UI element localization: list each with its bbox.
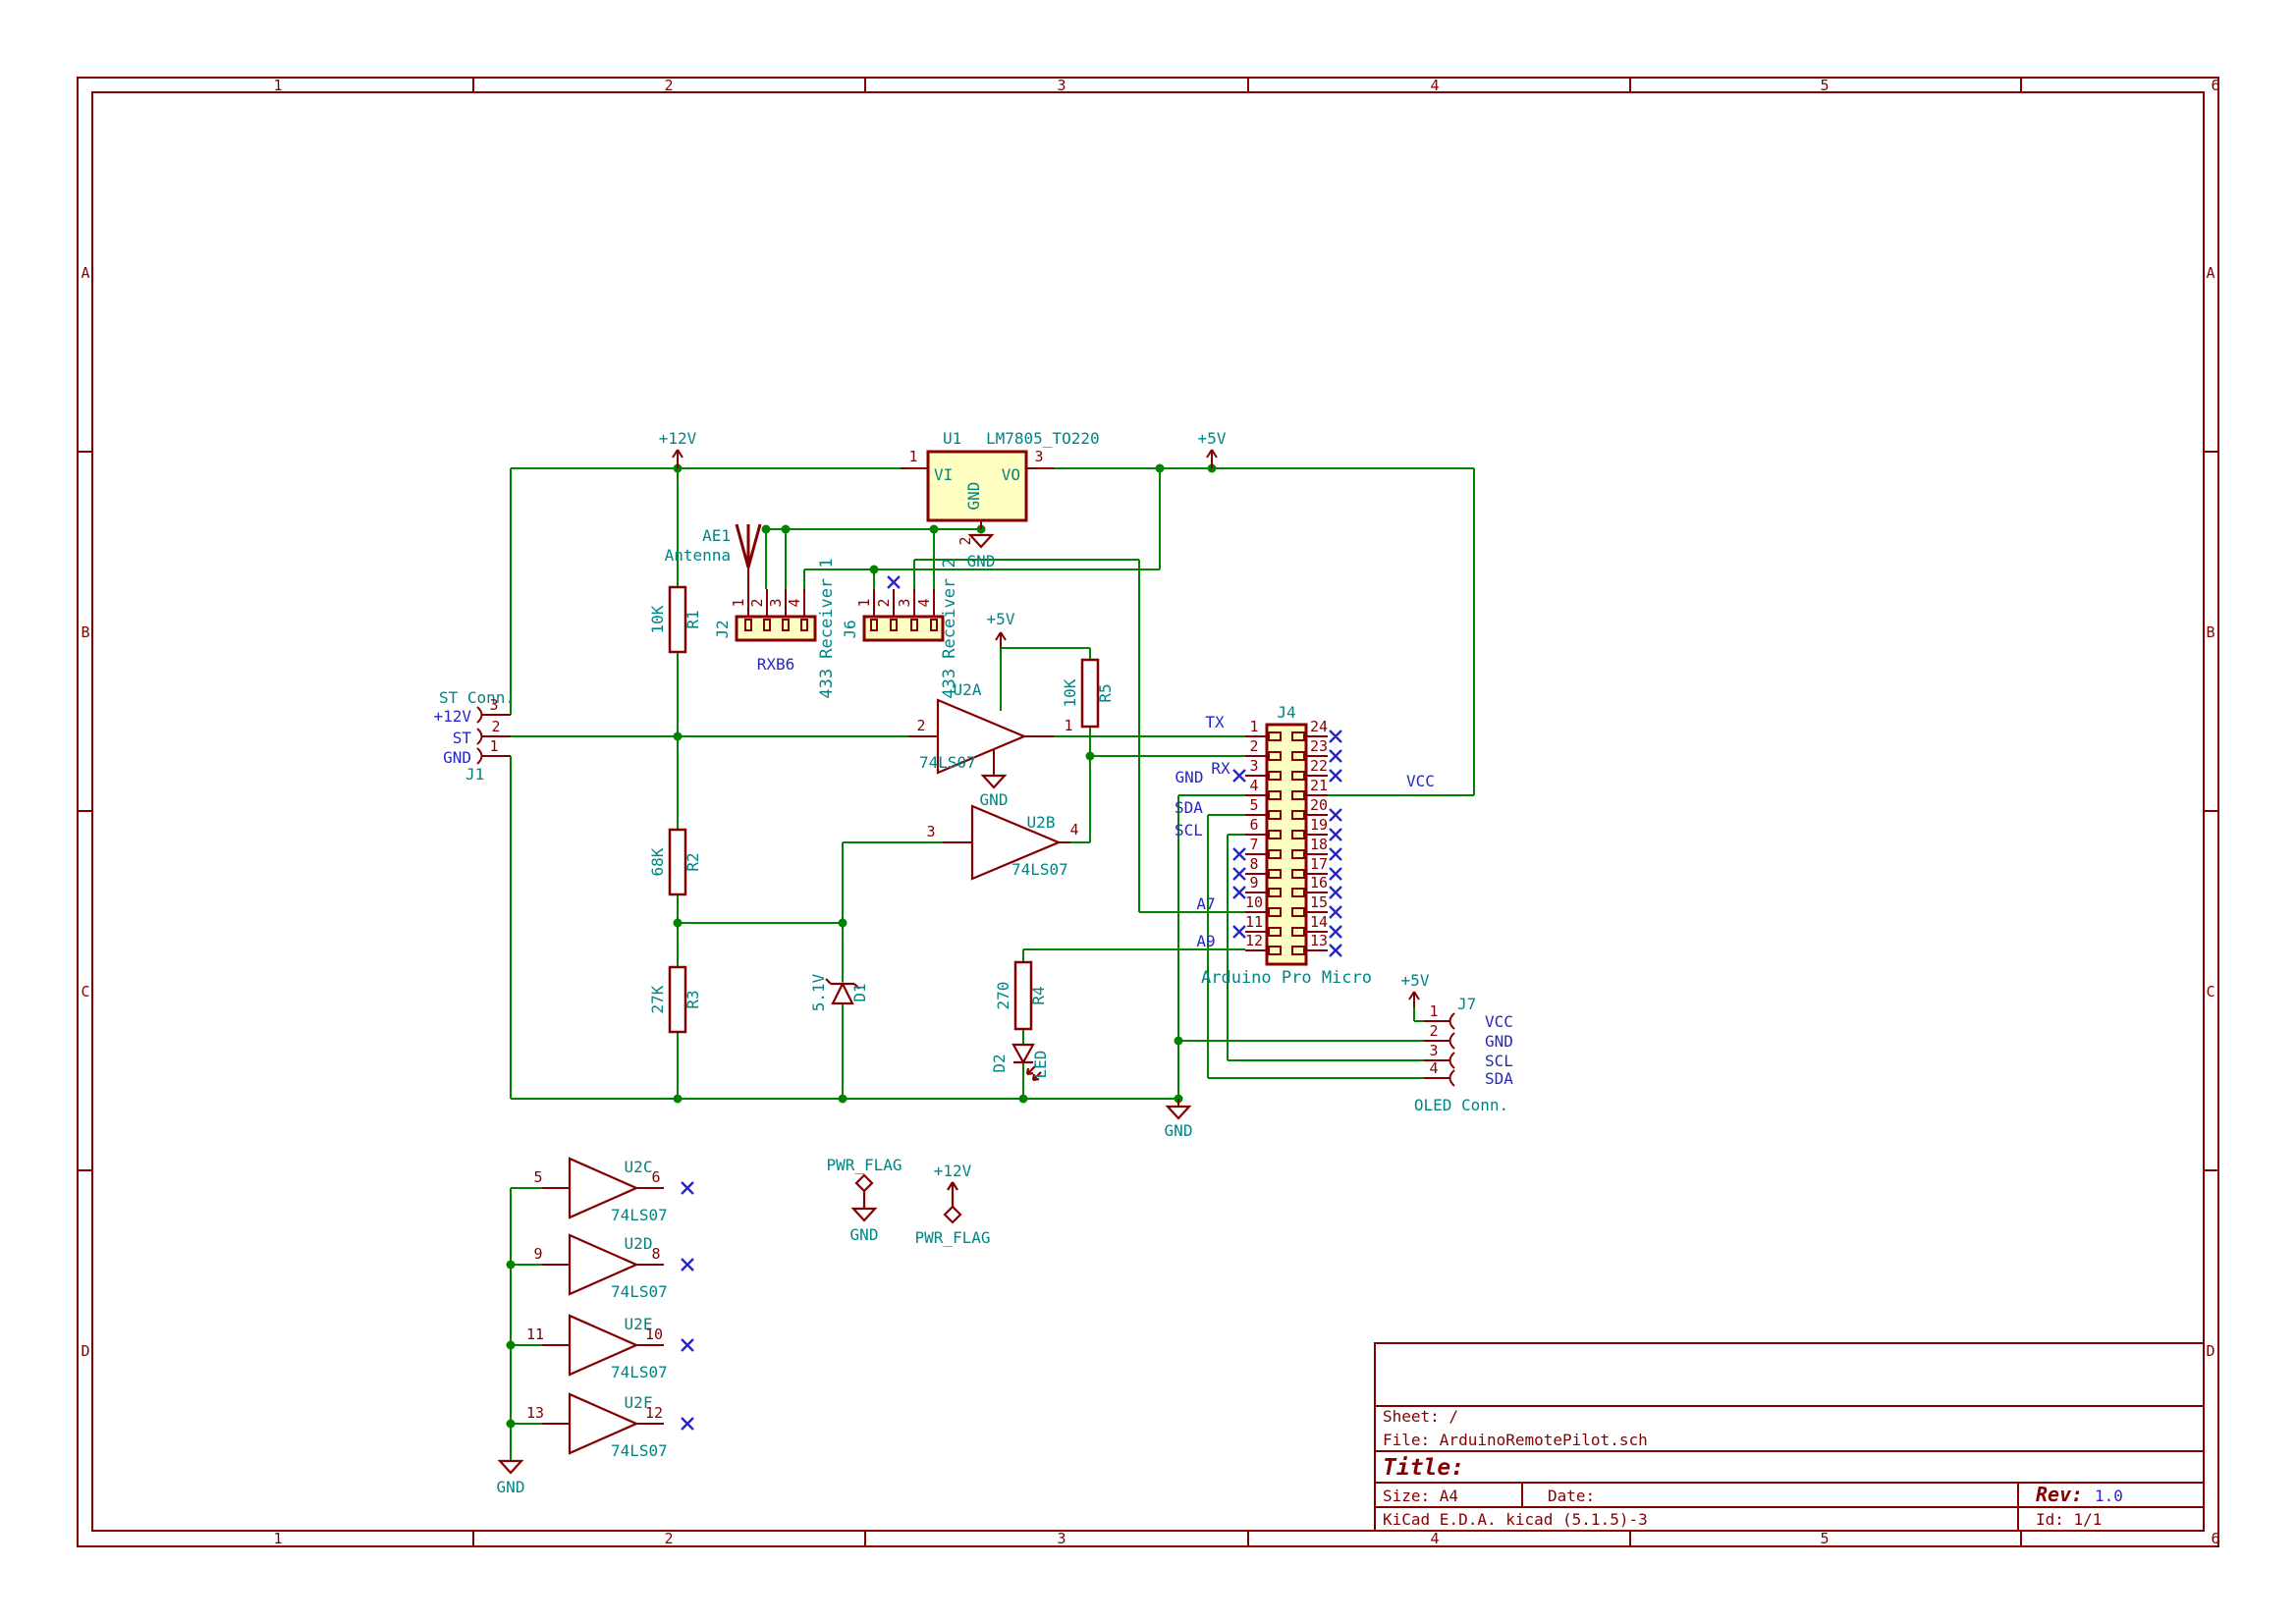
j4-value[interactable]: Arduino Pro Micro	[1201, 968, 1372, 988]
wire-5v-rail-vcc[interactable]	[1054, 468, 1474, 795]
frame-row-label: B	[81, 623, 89, 641]
junction-dot	[839, 1095, 847, 1104]
u2f-value[interactable]: 74LS07	[611, 1441, 668, 1460]
net-label-a7[interactable]: A7	[1196, 894, 1215, 913]
net-label-scl[interactable]: SCL	[1175, 821, 1203, 839]
j7-pin-label[interactable]: GND	[1485, 1032, 1513, 1051]
j4-pin-number: 10	[1245, 893, 1263, 911]
junction-dot	[674, 732, 683, 741]
component-r3[interactable]: 27K R3	[648, 967, 702, 1032]
title-block-file[interactable]: File: ArduinoRemotePilot.sch	[1383, 1431, 1648, 1449]
j1-ref[interactable]: J1	[465, 765, 484, 784]
net-label-tx[interactable]: TX	[1205, 713, 1225, 731]
component-j6-receiver2[interactable]: 1 2 3 4 J6 433 Receiver 2	[841, 558, 959, 698]
j4-pin-number: 14	[1310, 913, 1328, 931]
j4-pin-number: 2	[1249, 737, 1258, 755]
j7-value[interactable]: OLED Conn.	[1414, 1096, 1508, 1114]
frame-row-label: A	[2206, 264, 2214, 282]
j4-pin-number: 18	[1310, 836, 1328, 853]
frame-row-label: C	[2206, 983, 2214, 1001]
gnd-symbol-icon[interactable]	[983, 776, 1005, 787]
junction-dot	[1019, 1095, 1028, 1104]
power-arrow-icon[interactable]	[996, 632, 1006, 648]
r1-value[interactable]: 10K	[648, 605, 667, 633]
gnd-symbol-label[interactable]: GND	[967, 552, 996, 570]
wire-r5-pullup[interactable]	[1070, 727, 1245, 842]
j1-pin-label[interactable]: ST	[453, 729, 472, 747]
component-j7-oled-conn[interactable]: J7 1 2 3 4 VCC GND SCL SDA OLED Conn.	[1414, 995, 1513, 1114]
d2-ref[interactable]: D2	[990, 1054, 1009, 1072]
j7-pin-brackets	[1450, 1013, 1455, 1086]
power-label[interactable]: +5V	[1401, 971, 1430, 990]
pwr-flag-icon[interactable]	[945, 1182, 960, 1222]
j1-value[interactable]: ST Conn.	[439, 688, 515, 707]
frame-outer-border	[78, 78, 2218, 1546]
r2-value[interactable]: 68K	[648, 847, 667, 876]
pwr-flag-label[interactable]: PWR_FLAG	[826, 1156, 902, 1174]
j1-pin-number: 2	[491, 718, 500, 735]
wire-5v-oled[interactable]	[1414, 1007, 1424, 1021]
j7-pin-number: 3	[1429, 1042, 1438, 1059]
u2c-value[interactable]: 74LS07	[611, 1206, 668, 1224]
u2b-ref[interactable]: U2B	[1027, 813, 1056, 832]
junction-dot	[674, 919, 683, 928]
title-block-title-label[interactable]: Title:	[1383, 1455, 1464, 1481]
junction-dot	[507, 1341, 516, 1350]
j4-pin-number: 20	[1310, 796, 1328, 814]
component-j1-st-conn[interactable]: ST Conn. J1 3 2 1 +12V ST GND	[433, 688, 515, 784]
power-symbol-5v-u2a[interactable]: +5V	[987, 610, 1015, 648]
component-u2d-buffer[interactable]: U2D 74LS07 9 8	[533, 1234, 693, 1301]
j6-pin-number: 1	[855, 598, 873, 607]
power-arrow-icon[interactable]	[673, 450, 683, 468]
title-block-generator: KiCad E.D.A. kicad (5.1.5)-3	[1383, 1510, 1648, 1529]
j1-pin-label[interactable]: GND	[443, 748, 471, 767]
j4-pin-number: 15	[1310, 893, 1328, 911]
gnd-symbol-buffers[interactable]: GND	[497, 1461, 525, 1496]
j1-pin-number: 3	[489, 696, 498, 714]
u2d-pin-number: 8	[651, 1245, 660, 1263]
wire-zener-node[interactable]	[678, 842, 943, 1099]
frame-col-label: 1	[273, 1530, 282, 1547]
r4-ref[interactable]: R4	[1029, 986, 1048, 1004]
u1-ref[interactable]: U1	[943, 429, 961, 448]
j2-pin-number: 2	[748, 598, 766, 607]
j4-pin-number: 1	[1249, 718, 1258, 735]
junction-dot	[1086, 752, 1095, 761]
frame-col-label: 4	[1430, 1530, 1439, 1547]
u1-pin-number: 3	[1034, 448, 1043, 465]
junction-dot	[782, 525, 791, 534]
u2a-pin-number: 2	[916, 717, 925, 734]
u1-pin-number: 2	[957, 536, 974, 545]
component-r4[interactable]: 270 R4	[994, 962, 1048, 1029]
junction-dot	[930, 525, 939, 534]
pwr-flag-label[interactable]: PWR_FLAG	[914, 1228, 990, 1247]
j1-pin-label[interactable]: +12V	[433, 707, 471, 726]
u2b-pin-number: 4	[1069, 821, 1078, 839]
j2-description[interactable]: 433 Receiver 1	[817, 558, 837, 698]
junction-dot	[674, 1095, 683, 1104]
r3-ref[interactable]: R3	[683, 990, 702, 1008]
j4-pin-number: 23	[1310, 737, 1328, 755]
j4-pin-number: 17	[1310, 855, 1328, 873]
u1-pin-name-gnd: GND	[964, 482, 983, 511]
led-diode-icon[interactable]	[1013, 1045, 1033, 1062]
antenna-icon[interactable]	[737, 524, 760, 568]
frame-row-label: D	[81, 1342, 89, 1360]
u2f-pin-number: 12	[645, 1404, 663, 1422]
j6-pin-number: 3	[896, 598, 913, 607]
u1-pin-number: 1	[908, 448, 917, 465]
r5-value[interactable]: 10K	[1061, 678, 1079, 707]
u2e-pin-number: 10	[645, 1325, 663, 1343]
u2b-pin-number: 3	[926, 823, 935, 840]
title-block-sheet[interactable]: Sheet: /	[1383, 1407, 1458, 1426]
frame-col-label: 1	[273, 77, 282, 94]
gnd-symbol-label[interactable]: GND	[1165, 1121, 1193, 1140]
gnd-symbol-icon[interactable]	[1168, 1107, 1189, 1118]
no-connect-x[interactable]	[682, 1418, 693, 1430]
j4-pin-number: 16	[1310, 874, 1328, 892]
u2b-value[interactable]: 74LS07	[1011, 860, 1068, 879]
j2-pin-number: 1	[730, 598, 747, 607]
u2c-pin-number: 5	[533, 1168, 542, 1186]
j7-pin-number: 1	[1429, 1002, 1438, 1020]
j7-ref[interactable]: J7	[1457, 995, 1476, 1013]
junction-dot	[870, 566, 879, 574]
u2d-pin-number: 9	[533, 1245, 542, 1263]
j7-pin-label[interactable]: VCC	[1485, 1012, 1513, 1031]
j2-pin-number: 4	[786, 598, 803, 607]
wire-gnd-bottom-rail[interactable]	[511, 756, 1178, 1099]
pwr-flag-icon[interactable]	[853, 1175, 875, 1220]
title-block-rev-value[interactable]: 1.0	[2095, 1487, 2123, 1505]
u1-value[interactable]: LM7805_TO220	[986, 429, 1100, 448]
frame-col-label: 4	[1430, 77, 1439, 94]
u2c-pin-number: 6	[651, 1168, 660, 1186]
d2-value[interactable]: LED	[1031, 1051, 1050, 1079]
j7-pin-number: 4	[1429, 1059, 1438, 1077]
no-connect-x[interactable]	[682, 1259, 693, 1271]
r2-ref[interactable]: R2	[683, 852, 702, 871]
j4-pin-number: 6	[1249, 816, 1258, 834]
u2a-value[interactable]: 74LS07	[919, 753, 976, 772]
j4-pin-number: 4	[1249, 777, 1258, 794]
u2e-pin-number: 11	[526, 1325, 544, 1343]
j6-ref[interactable]: J6	[841, 620, 859, 638]
component-r2[interactable]: 68K R2	[648, 830, 702, 894]
power-symbol-5v-main[interactable]: +5V	[1198, 429, 1227, 468]
gnd-symbol-label[interactable]: GND	[497, 1478, 525, 1496]
component-d1-zener[interactable]: 5.1V D1	[809, 973, 869, 1011]
d1-value[interactable]: 5.1V	[809, 973, 828, 1011]
gnd-symbol-label[interactable]: GND	[850, 1225, 879, 1244]
component-u2e-buffer[interactable]: U2E 74LS07 11 10	[526, 1315, 693, 1381]
net-label-a9[interactable]: A9	[1196, 932, 1215, 950]
j6-pin-number: 4	[915, 598, 933, 607]
frame-row-label: D	[2206, 1342, 2214, 1360]
j4-pin-number: 7	[1249, 836, 1258, 853]
component-j2-receiver1[interactable]: 1 2 3 4 J2 RXB6 433 Receiver 1	[713, 558, 837, 698]
u2e-value[interactable]: 74LS07	[611, 1363, 668, 1381]
frame-row-label: C	[81, 983, 89, 1001]
component-d2-led[interactable]: D2 LED	[990, 1045, 1050, 1080]
u2d-ref[interactable]: U2D	[625, 1234, 653, 1253]
u2a-ref[interactable]: U2A	[954, 680, 982, 699]
j7-pin-number: 2	[1429, 1022, 1438, 1040]
power-arrow-icon[interactable]	[1409, 992, 1419, 1007]
j4-pin-number: 12	[1245, 932, 1263, 949]
u2c-ref[interactable]: U2C	[625, 1158, 653, 1176]
junction-dot	[1156, 464, 1165, 473]
ae1-ref[interactable]: AE1	[702, 526, 731, 545]
frame-division-ticks	[78, 78, 2218, 1546]
frame-col-label: 2	[664, 77, 673, 94]
sheet-frame: 1 2 3 4 5 6 1 2 3 4 5 6 A B C D A B C D	[78, 77, 2220, 1547]
title-block-rev-label[interactable]: Rev:	[2036, 1483, 2083, 1506]
j1-pin-brackets	[477, 707, 482, 764]
junction-dot	[1175, 1037, 1183, 1046]
j6-description[interactable]: 433 Receiver 2	[940, 558, 959, 698]
j2-pin-number: 3	[767, 598, 785, 607]
j4-pin-number: 3	[1249, 757, 1258, 775]
ae1-value[interactable]: Antenna	[665, 546, 731, 565]
frame-col-label: 3	[1057, 1530, 1066, 1547]
frame-col-label: 6	[2211, 77, 2219, 94]
j2-ref[interactable]: J2	[713, 620, 732, 638]
j4-ref[interactable]: J4	[1277, 703, 1295, 722]
title-block-sheet-id: Id: 1/1	[2036, 1510, 2102, 1529]
component-u1-regulator[interactable]: U1 LM7805_TO220 1 3 2 VI VO GND GND	[901, 429, 1100, 570]
j4-pin-number: 24	[1310, 718, 1328, 735]
j4-pin-number: 19	[1310, 816, 1328, 834]
power-arrow-icon[interactable]	[1207, 450, 1217, 468]
frame-col-label: 6	[2211, 1530, 2219, 1547]
power-symbol-12v-main[interactable]: +12V	[659, 429, 697, 468]
frame-col-label: 5	[1820, 77, 1829, 94]
power-label[interactable]: +5V	[987, 610, 1015, 628]
u2f-pin-number: 13	[526, 1404, 544, 1422]
no-connect-x[interactable]	[682, 1182, 693, 1194]
r4-value[interactable]: 270	[994, 982, 1012, 1010]
power-symbol-5v-oled[interactable]: +5V	[1401, 971, 1430, 1007]
j2-value[interactable]: RXB6	[757, 655, 795, 674]
frame-col-label: 2	[664, 1530, 673, 1547]
d1-ref[interactable]: D1	[850, 983, 869, 1001]
component-ae1-antenna[interactable]: AE1 Antenna	[665, 524, 760, 589]
no-connect-x-right[interactable]	[1330, 730, 1341, 956]
u2d-value[interactable]: 74LS07	[611, 1282, 668, 1301]
title-block-date-label[interactable]: Date:	[1548, 1487, 1595, 1505]
component-u2f-buffer[interactable]: U2F 74LS07 13 12	[526, 1393, 693, 1460]
u1-pin-name-vi: VI	[934, 465, 953, 484]
u1-pin-name-vo: VO	[1002, 465, 1020, 484]
pwr-flag-12v[interactable]: +12V PWR_FLAG	[914, 1162, 990, 1247]
gnd-symbol-label[interactable]: GND	[980, 790, 1009, 809]
frame-col-label: 5	[1820, 1530, 1829, 1547]
r1-ref[interactable]: R1	[683, 610, 702, 628]
component-r1[interactable]: 10K R1	[648, 587, 702, 652]
r3-value[interactable]: 27K	[648, 985, 667, 1013]
u2a-pin-number: 1	[1064, 717, 1072, 734]
frame-row-label: A	[81, 264, 89, 282]
j4-pin-number: 21	[1310, 777, 1328, 794]
gnd-symbol-icon[interactable]	[500, 1461, 521, 1473]
j7-pin-label[interactable]: SCL	[1485, 1052, 1513, 1070]
power-label[interactable]: +5V	[1198, 429, 1227, 448]
r5-ref[interactable]: R5	[1096, 683, 1115, 702]
kicad-schematic-page: 1 2 3 4 5 6 1 2 3 4 5 6 A B C D A B C D	[0, 0, 2296, 1623]
j4-pin-number: 9	[1249, 874, 1258, 892]
pwr-flag-gnd[interactable]: PWR_FLAG GND	[826, 1156, 902, 1244]
junction-dot	[839, 919, 847, 928]
frame-row-label: B	[2206, 623, 2214, 641]
junction-dot	[762, 525, 771, 534]
j4-pin-number: 22	[1310, 757, 1328, 775]
net-label-rx[interactable]: RX	[1211, 759, 1230, 778]
j4-pin-number: 5	[1249, 796, 1258, 814]
title-block[interactable]: Sheet: / File: ArduinoRemotePilot.sch Ti…	[1375, 1343, 2204, 1531]
junction-dot	[507, 1420, 516, 1429]
component-u2a-buffer[interactable]: U2A 74LS07 2 1 GND	[908, 680, 1073, 809]
junction-dot	[507, 1261, 516, 1270]
power-label[interactable]: +12V	[659, 429, 697, 448]
j1-pin-number: 1	[489, 737, 498, 755]
j4-pin-number: 13	[1310, 932, 1328, 949]
schematic-canvas[interactable]: 1 2 3 4 5 6 1 2 3 4 5 6 A B C D A B C D	[0, 0, 2296, 1623]
frame-col-label: 3	[1057, 77, 1066, 94]
power-label[interactable]: +12V	[934, 1162, 972, 1180]
j7-pin-label[interactable]: SDA	[1485, 1069, 1513, 1088]
j4-pin-number: 11	[1245, 913, 1263, 931]
j6-pin-number: 2	[875, 598, 893, 607]
gnd-symbol-main[interactable]: GND	[1165, 1099, 1193, 1140]
net-label-sda[interactable]: SDA	[1175, 798, 1203, 817]
title-block-size[interactable]: Size: A4	[1383, 1487, 1458, 1505]
j4-pin-number: 8	[1249, 855, 1258, 873]
wire-12v-rail[interactable]	[511, 468, 901, 715]
component-u2c-buffer[interactable]: U2C 74LS07 5 6	[533, 1158, 693, 1224]
frame-inner-border	[92, 92, 2204, 1531]
component-u2b-buffer[interactable]: U2B 74LS07 3 4	[926, 806, 1078, 879]
net-label-vcc[interactable]: VCC	[1406, 772, 1435, 790]
net-label-gnd[interactable]: GND	[1175, 768, 1204, 786]
no-connect-x[interactable]	[888, 576, 900, 588]
no-connect-x[interactable]	[682, 1339, 693, 1351]
